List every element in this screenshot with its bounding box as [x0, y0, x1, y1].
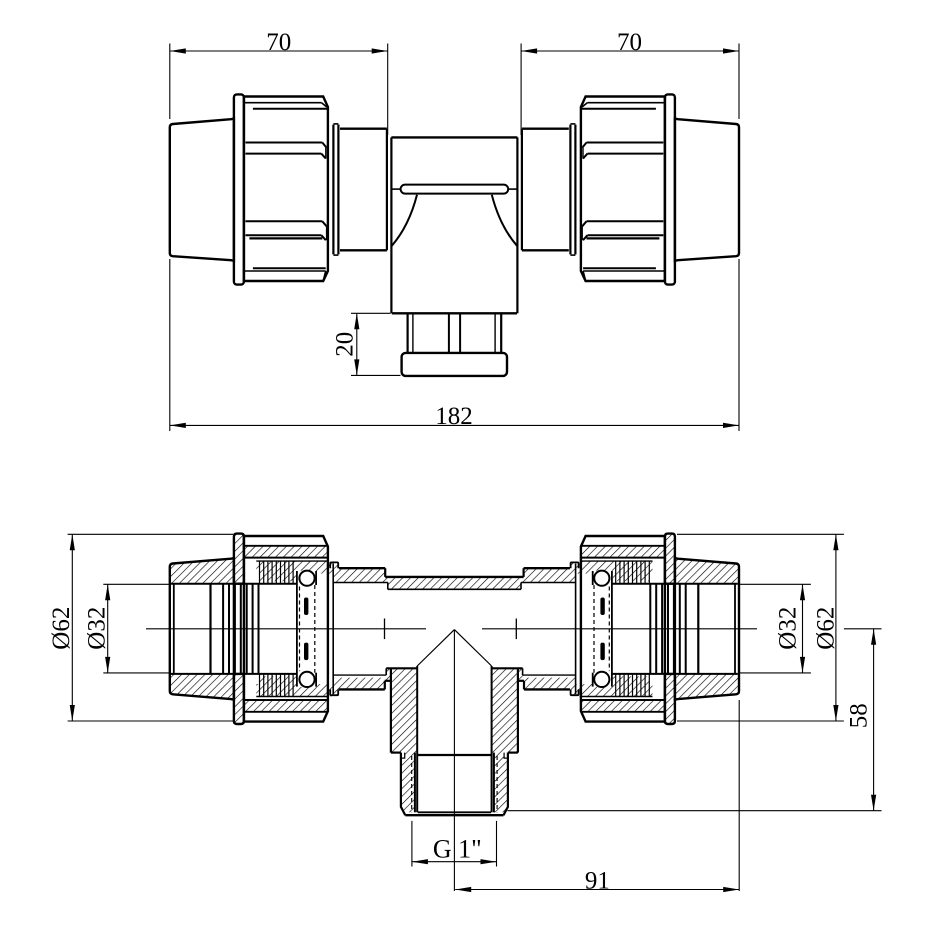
svg-text:Ø62: Ø62 — [812, 607, 839, 650]
svg-text:Ø32: Ø32 — [84, 607, 111, 650]
svg-text:182: 182 — [435, 403, 473, 430]
svg-text:20: 20 — [332, 332, 359, 357]
svg-text:91: 91 — [585, 868, 610, 895]
svg-text:Ø32: Ø32 — [775, 607, 802, 650]
svg-text:58: 58 — [846, 703, 873, 728]
svg-text:70: 70 — [266, 29, 291, 56]
svg-text:70: 70 — [617, 29, 642, 56]
svg-text:Ø62: Ø62 — [48, 607, 75, 650]
svg-text:G 1": G 1" — [433, 834, 482, 863]
